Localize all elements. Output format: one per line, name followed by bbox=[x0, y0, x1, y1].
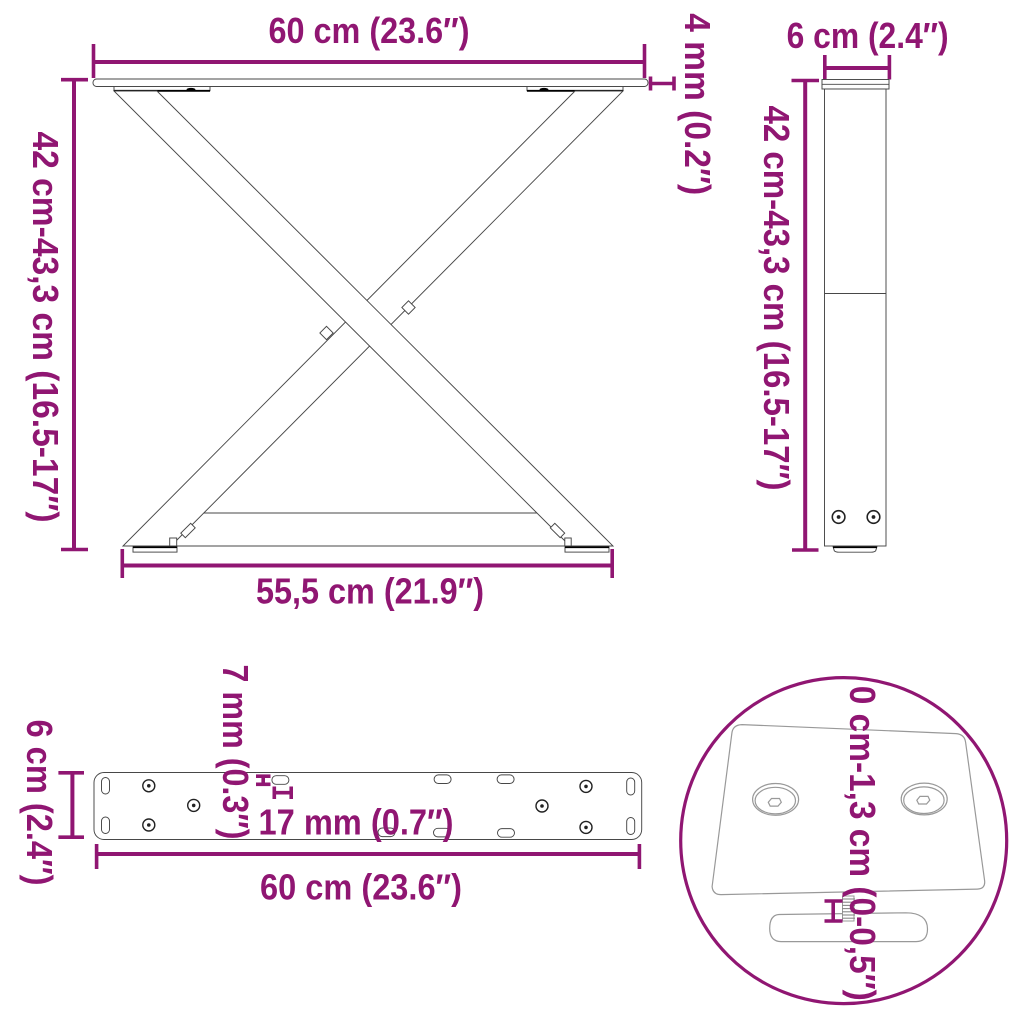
svg-text:7 mm (0.3″): 7 mm (0.3″) bbox=[215, 665, 256, 840]
svg-text:60 cm (23.6″): 60 cm (23.6″) bbox=[260, 867, 462, 908]
svg-text:6 cm (2.4″): 6 cm (2.4″) bbox=[19, 720, 60, 886]
svg-text:4 mm (0.2″): 4 mm (0.2″) bbox=[677, 13, 718, 195]
svg-text:6 cm (2.4″): 6 cm (2.4″) bbox=[787, 15, 949, 56]
svg-text:55,5 cm (21.9″): 55,5 cm (21.9″) bbox=[256, 571, 484, 612]
svg-text:42 cm-43,3 cm (16.5-17″): 42 cm-43,3 cm (16.5-17″) bbox=[25, 132, 66, 523]
svg-text:60 cm (23.6″): 60 cm (23.6″) bbox=[269, 10, 470, 51]
svg-text:42 cm-43,3 cm (16.5-17″): 42 cm-43,3 cm (16.5-17″) bbox=[756, 106, 797, 491]
svg-text:0 cm-1,3 cm (0-0,5″): 0 cm-1,3 cm (0-0,5″) bbox=[842, 686, 883, 1001]
svg-text:17 mm (0.7″): 17 mm (0.7″) bbox=[259, 801, 454, 842]
